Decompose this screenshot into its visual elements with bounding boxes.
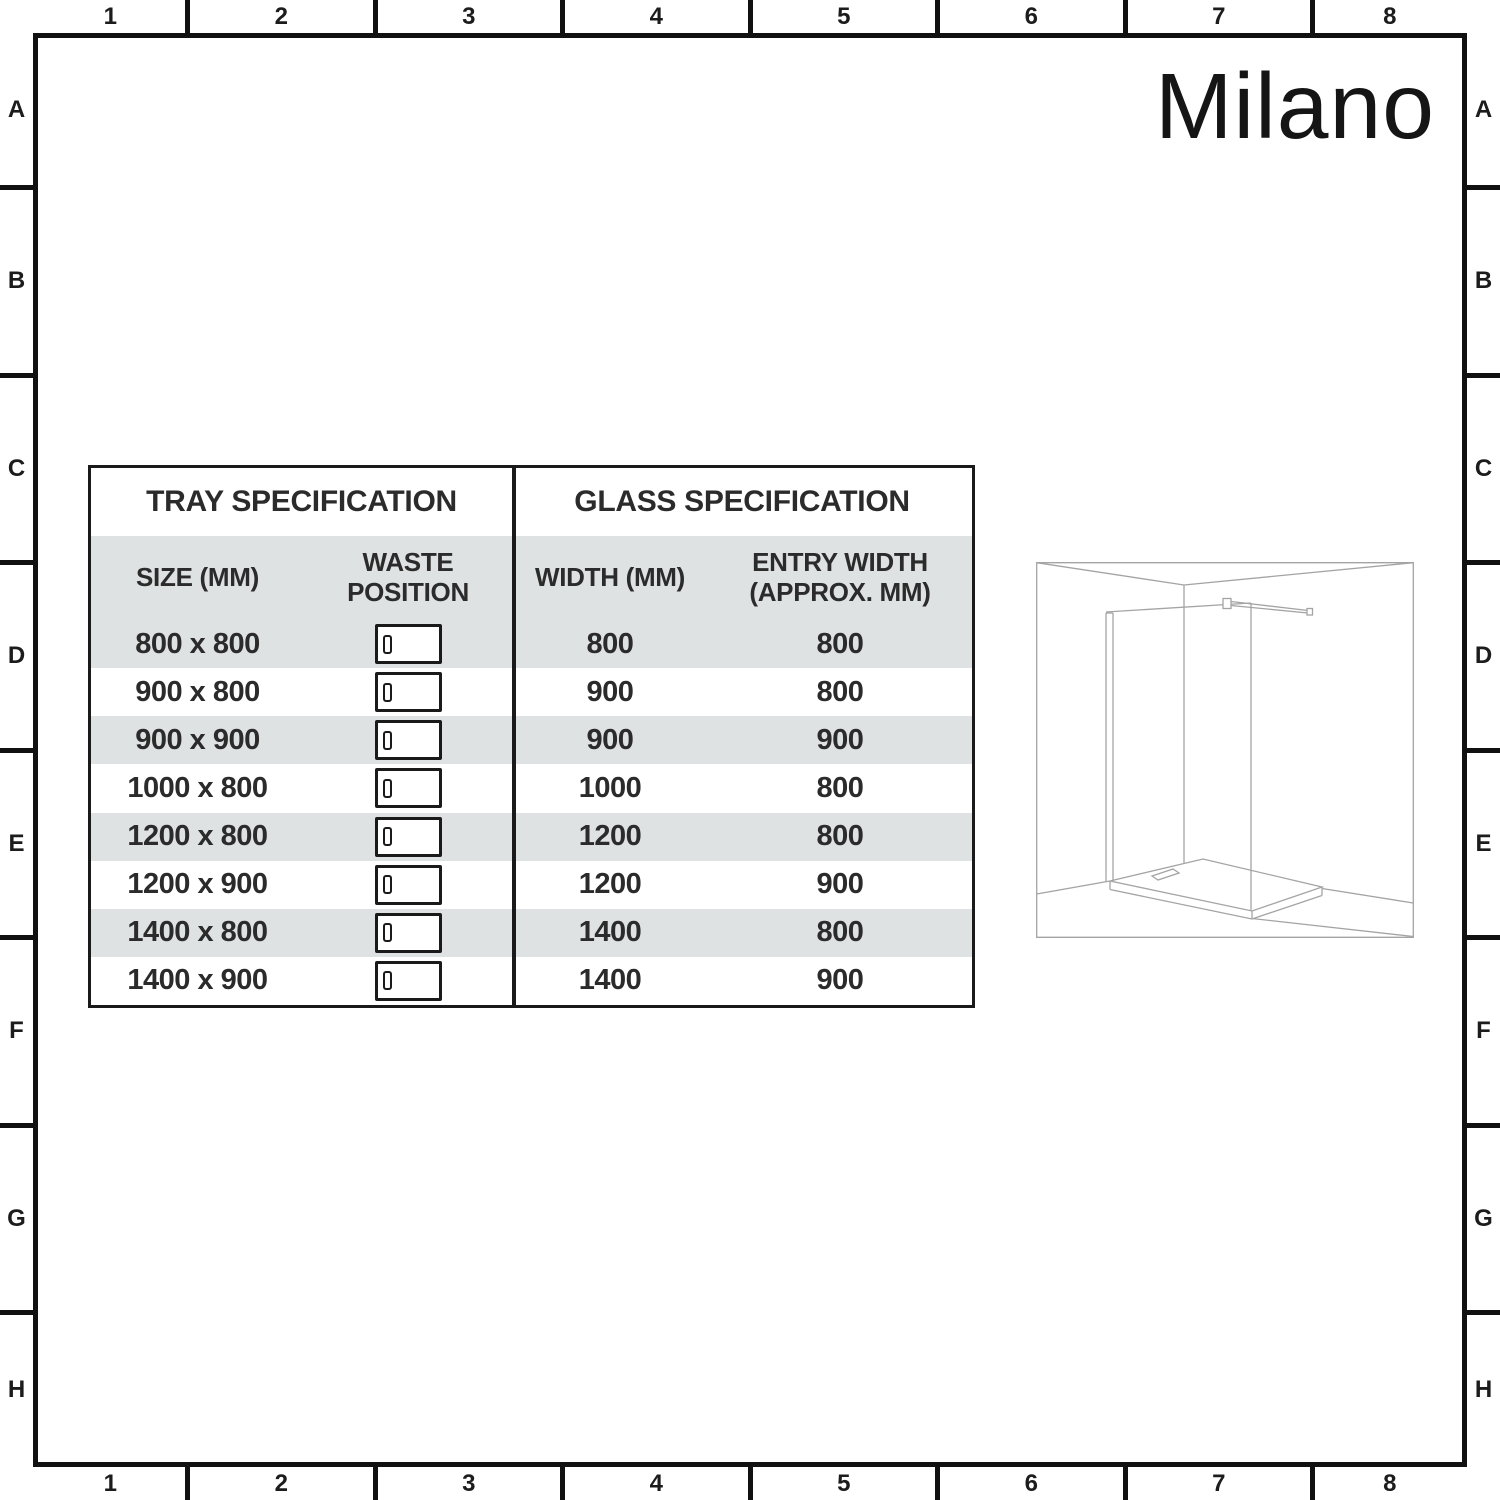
grid-column-label-top: 4 bbox=[631, 0, 681, 33]
grid-tick-top bbox=[1123, 0, 1128, 33]
shower-tray bbox=[1110, 859, 1322, 919]
grid-tick-bottom bbox=[748, 1467, 753, 1500]
grid-column-label-top: 8 bbox=[1365, 0, 1415, 33]
grid-tick-bottom bbox=[560, 1467, 565, 1500]
grid-column-label-bottom: 4 bbox=[631, 1467, 681, 1500]
grid-column-label-bottom: 2 bbox=[256, 1467, 306, 1500]
grid-column-label-bottom: 5 bbox=[819, 1467, 869, 1500]
support-arm bbox=[1223, 599, 1313, 616]
tray-table-title: TRAY SPECIFICATION bbox=[91, 468, 512, 536]
grid-column-label-top: 2 bbox=[256, 0, 306, 33]
brand-logo: Milano bbox=[1155, 60, 1435, 152]
tray-waste-position-icon bbox=[375, 720, 442, 760]
grid-row-label-left: B bbox=[0, 265, 33, 298]
glass-table-title: GLASS SPECIFICATION bbox=[512, 468, 972, 536]
specification-table: TRAY SPECIFICATION GLASS SPECIFICATION S… bbox=[88, 465, 975, 1008]
grid-tick-right bbox=[1467, 748, 1500, 753]
grid-tick-top bbox=[373, 0, 378, 33]
grid-row-label-right: B bbox=[1467, 265, 1500, 298]
glass-width-value: 900 bbox=[512, 668, 708, 716]
entry-width-value: 900 bbox=[708, 716, 972, 764]
grid-row-label-right: H bbox=[1467, 1373, 1500, 1406]
waste-outlet-mark bbox=[383, 635, 392, 654]
table-row: 800 x 800800800 bbox=[91, 620, 972, 668]
grid-column-label-bottom: 1 bbox=[85, 1467, 135, 1500]
grid-tick-left bbox=[0, 560, 33, 565]
column-header-size: SIZE (MM) bbox=[91, 536, 304, 620]
grid-row-label-right: A bbox=[1467, 94, 1500, 127]
grid-tick-bottom bbox=[1310, 1467, 1315, 1500]
grid-column-label-bottom: 3 bbox=[444, 1467, 494, 1500]
column-header-waste-position: WASTE POSITION bbox=[304, 536, 512, 620]
table-row: 900 x 800900800 bbox=[91, 668, 972, 716]
grid-row-label-left: E bbox=[0, 827, 33, 860]
grid-tick-left bbox=[0, 748, 33, 753]
grid-tick-left bbox=[0, 185, 33, 190]
tray-waste-position-icon bbox=[375, 865, 442, 905]
tray-waste-position-icon bbox=[375, 913, 442, 953]
glass-width-value: 1400 bbox=[512, 957, 708, 1005]
grid-row-label-left: A bbox=[0, 94, 33, 127]
room-outline bbox=[1037, 563, 1414, 938]
entry-width-value: 800 bbox=[708, 909, 972, 957]
table-row: 1000 x 8001000800 bbox=[91, 764, 972, 812]
entry-width-value: 800 bbox=[708, 620, 972, 668]
table-row: 1400 x 9001400900 bbox=[91, 957, 972, 1005]
grid-row-label-right: D bbox=[1467, 640, 1500, 673]
waste-position-cell bbox=[304, 813, 512, 861]
walk-in-shower-enclosure-diagram bbox=[1036, 562, 1414, 939]
grid-tick-bottom bbox=[373, 1467, 378, 1500]
waste-position-cell bbox=[304, 764, 512, 812]
waste-outlet-mark bbox=[383, 875, 392, 894]
waste-outlet-mark bbox=[383, 683, 392, 702]
grid-column-label-top: 5 bbox=[819, 0, 869, 33]
entry-width-value: 800 bbox=[708, 668, 972, 716]
glass-width-value: 800 bbox=[512, 620, 708, 668]
grid-row-label-right: G bbox=[1467, 1202, 1500, 1235]
waste-position-cell bbox=[304, 620, 512, 668]
entry-width-value: 800 bbox=[708, 764, 972, 812]
grid-tick-top bbox=[935, 0, 940, 33]
grid-column-label-top: 1 bbox=[85, 0, 135, 33]
grid-tick-left bbox=[0, 373, 33, 378]
grid-tick-left bbox=[0, 1310, 33, 1315]
waste-outlet-mark bbox=[383, 923, 392, 942]
grid-row-label-right: F bbox=[1467, 1015, 1500, 1048]
grid-column-label-top: 7 bbox=[1194, 0, 1244, 33]
waste-outlet-mark bbox=[383, 971, 392, 990]
glass-width-value: 900 bbox=[512, 716, 708, 764]
grid-column-label-top: 6 bbox=[1006, 0, 1056, 33]
grid-tick-top bbox=[185, 0, 190, 33]
tray-size-value: 1400 x 900 bbox=[91, 957, 304, 1005]
waste-position-cell bbox=[304, 716, 512, 764]
tray-waste-position-icon bbox=[375, 672, 442, 712]
grid-tick-right bbox=[1467, 1123, 1500, 1128]
waste-position-cell bbox=[304, 668, 512, 716]
tray-waste-position-icon bbox=[375, 768, 442, 808]
tray-size-value: 900 x 900 bbox=[91, 716, 304, 764]
grid-row-label-right: E bbox=[1467, 827, 1500, 860]
grid-tick-right bbox=[1467, 373, 1500, 378]
column-header-width: WIDTH (MM) bbox=[512, 536, 708, 620]
tray-waste-position-icon bbox=[375, 961, 442, 1001]
tray-size-value: 900 x 800 bbox=[91, 668, 304, 716]
grid-row-label-left: F bbox=[0, 1015, 33, 1048]
glass-width-value: 1200 bbox=[512, 861, 708, 909]
grid-tick-right bbox=[1467, 1310, 1500, 1315]
grid-column-label-bottom: 8 bbox=[1365, 1467, 1415, 1500]
table-header-row: TRAY SPECIFICATION GLASS SPECIFICATION bbox=[91, 468, 972, 536]
waste-position-cell bbox=[304, 957, 512, 1005]
glass-width-value: 1000 bbox=[512, 764, 708, 812]
grid-column-label-top: 3 bbox=[444, 0, 494, 33]
table-divider bbox=[512, 468, 516, 1005]
grid-tick-top bbox=[1310, 0, 1315, 33]
waste-outlet-mark bbox=[383, 779, 392, 798]
grid-row-label-left: G bbox=[0, 1202, 33, 1235]
grid-tick-left bbox=[0, 935, 33, 940]
tray-waste-position-icon bbox=[375, 624, 442, 664]
grid-tick-left bbox=[0, 1123, 33, 1128]
grid-tick-bottom bbox=[1123, 1467, 1128, 1500]
table-row: 1400 x 8001400800 bbox=[91, 909, 972, 957]
grid-row-label-left: H bbox=[0, 1373, 33, 1406]
grid-tick-top bbox=[748, 0, 753, 33]
table-row: 1200 x 9001200900 bbox=[91, 861, 972, 909]
grid-row-label-right: C bbox=[1467, 452, 1500, 485]
column-header-entry-width: ENTRY WIDTH (APPROX. MM) bbox=[708, 536, 972, 620]
table-row: 1200 x 8001200800 bbox=[91, 813, 972, 861]
tray-size-value: 800 x 800 bbox=[91, 620, 304, 668]
entry-width-value: 900 bbox=[708, 861, 972, 909]
tray-size-value: 1000 x 800 bbox=[91, 764, 304, 812]
table-row: 900 x 900900900 bbox=[91, 716, 972, 764]
grid-tick-bottom bbox=[935, 1467, 940, 1500]
grid-row-label-left: C bbox=[0, 452, 33, 485]
waste-outlet-mark bbox=[383, 731, 392, 750]
grid-tick-right bbox=[1467, 560, 1500, 565]
grid-tick-right bbox=[1467, 935, 1500, 940]
grid-column-label-bottom: 6 bbox=[1006, 1467, 1056, 1500]
table-body: 800 x 800800800900 x 800900800900 x 9009… bbox=[91, 620, 972, 1005]
waste-position-cell bbox=[304, 909, 512, 957]
waste-outlet-mark bbox=[383, 827, 392, 846]
grid-tick-bottom bbox=[185, 1467, 190, 1500]
table-subheader-row: SIZE (MM) WASTE POSITION WIDTH (MM) ENTR… bbox=[91, 536, 972, 620]
tray-size-value: 1200 x 900 bbox=[91, 861, 304, 909]
entry-width-value: 900 bbox=[708, 957, 972, 1005]
grid-column-label-bottom: 7 bbox=[1194, 1467, 1244, 1500]
entry-width-value: 800 bbox=[708, 813, 972, 861]
grid-tick-right bbox=[1467, 185, 1500, 190]
grid-tick-top bbox=[560, 0, 565, 33]
glass-width-value: 1400 bbox=[512, 909, 708, 957]
specification-sheet: 11AA22BB33CC44DD55EE66FF77GG88HH Milano … bbox=[0, 0, 1500, 1500]
grid-row-label-left: D bbox=[0, 640, 33, 673]
glass-width-value: 1200 bbox=[512, 813, 708, 861]
tray-size-value: 1200 x 800 bbox=[91, 813, 304, 861]
tray-size-value: 1400 x 800 bbox=[91, 909, 304, 957]
tray-waste-position-icon bbox=[375, 817, 442, 857]
waste-position-cell bbox=[304, 861, 512, 909]
